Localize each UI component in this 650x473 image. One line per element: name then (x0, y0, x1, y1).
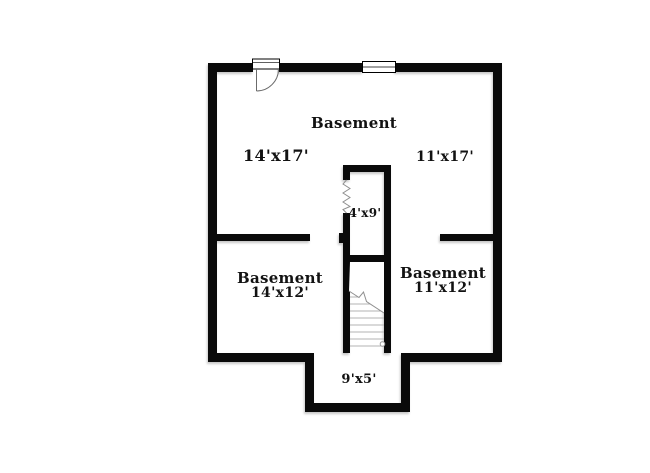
upper-room-left-dim: 14'x17' (243, 146, 309, 165)
bumpout-dim: 9'x5' (341, 372, 376, 387)
wall-divider-right (440, 234, 502, 241)
door-swing-arc (257, 69, 279, 91)
upper-room-name: Basement (311, 114, 397, 132)
wall-closet-left-lower (343, 213, 350, 353)
wall-closet-top (343, 165, 391, 172)
wall-top-right-segment (395, 63, 502, 72)
wall-closet-left-upper (343, 165, 350, 180)
window-icon (363, 62, 396, 73)
door-icon (253, 59, 280, 91)
staircase-icon (349, 262, 385, 346)
lower-left-room-dim: 14'x12' (251, 285, 309, 301)
wall-bumpout-bottom (305, 403, 410, 412)
stair-post-marker (380, 342, 385, 347)
wall-divider-left (208, 234, 310, 241)
wall-stair-divider (343, 255, 391, 262)
door-frame (253, 59, 280, 69)
floorplan-page: Basement 14'x17' 11'x17' 4'x9' Basement … (0, 0, 650, 473)
wall-bottom-right-segment (401, 353, 502, 362)
wall-right (493, 63, 502, 362)
upper-room-right-dim: 11'x17' (416, 149, 474, 165)
wall-bumpout-right (401, 353, 410, 412)
wall-left (208, 63, 217, 362)
stair-break-mask (349, 262, 384, 313)
wall-bottom-left-segment (208, 353, 314, 362)
wall-closet-left-stub (339, 233, 343, 243)
wall-top-mid-segment (279, 63, 363, 72)
floorplan-drawing: Basement 14'x17' 11'x17' 4'x9' Basement … (0, 0, 650, 473)
lower-right-room-dim: 11'x12' (414, 280, 472, 296)
closet-dim: 4'x9' (349, 206, 382, 220)
